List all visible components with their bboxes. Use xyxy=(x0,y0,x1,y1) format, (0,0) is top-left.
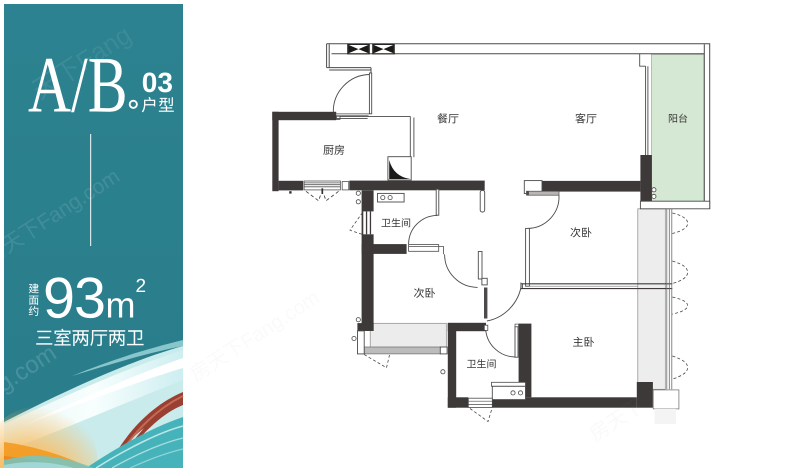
svg-text:阳台: 阳台 xyxy=(668,113,688,125)
svg-text:户型: 户型 xyxy=(141,97,175,115)
svg-text:卫生间: 卫生间 xyxy=(467,359,497,371)
svg-text:卫生间: 卫生间 xyxy=(381,218,411,230)
svg-text:主卧: 主卧 xyxy=(573,336,595,349)
svg-text:03: 03 xyxy=(142,67,173,98)
svg-text:客厅: 客厅 xyxy=(575,113,597,126)
svg-text:厨房: 厨房 xyxy=(323,144,345,157)
svg-text:m: m xyxy=(106,285,136,326)
svg-text:次卧: 次卧 xyxy=(570,227,592,240)
svg-text:餐厅: 餐厅 xyxy=(437,113,459,126)
svg-text:次卧: 次卧 xyxy=(414,287,436,300)
svg-text:房天下Fang.com: 房天下Fang.com xyxy=(187,287,324,387)
svg-text:约: 约 xyxy=(28,305,39,318)
svg-text:建: 建 xyxy=(28,283,39,296)
svg-text:93: 93 xyxy=(43,267,105,331)
svg-text:2: 2 xyxy=(136,276,147,297)
svg-text:三室两厅两卫: 三室两厅两卫 xyxy=(35,328,144,349)
svg-text:面: 面 xyxy=(28,295,39,307)
